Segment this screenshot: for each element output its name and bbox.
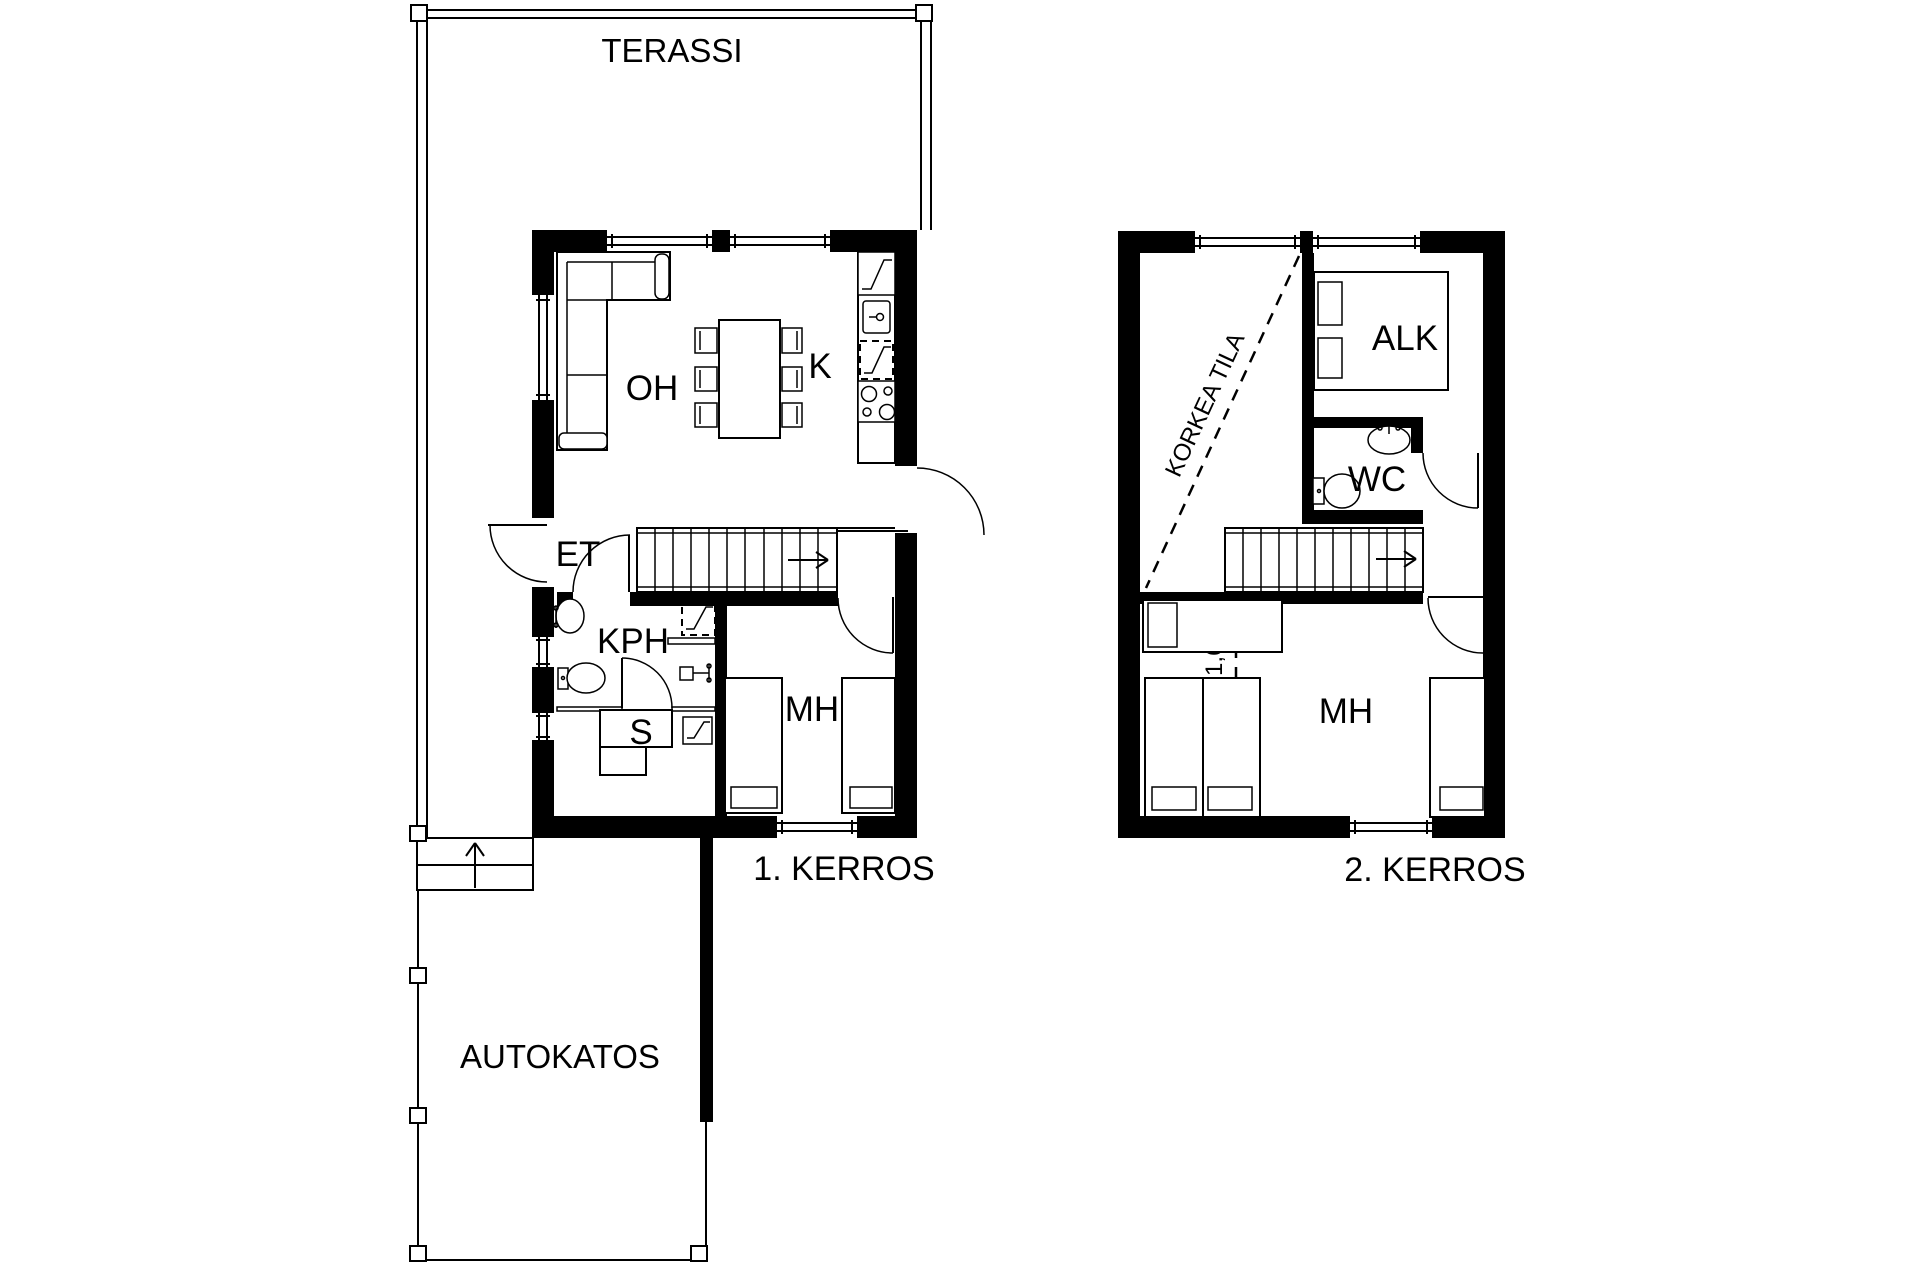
doors [1423,453,1483,653]
kitchen-label: K [808,347,831,386]
kitchen-fixtures [858,252,895,463]
bathroom-label: KPH [597,622,669,661]
bed [842,678,895,813]
post-marker [410,1246,426,1261]
second-floor-title: 2. KERROS [1344,851,1525,889]
bed [725,678,782,813]
pillow [1318,282,1342,325]
staircase [637,528,895,592]
carport-wall [700,838,713,1122]
carport-label: AUTOKATOS [460,1038,660,1075]
entrance-steps [417,838,533,890]
sauna-label: S [629,713,652,752]
post-marker [410,826,426,841]
washing-machine-icon [682,602,715,635]
floor-plan-canvas: TERASSI AUTOKATOS [0,0,1920,1280]
pillow [1440,787,1483,810]
pillow [850,787,892,808]
pillow [1318,338,1342,378]
window [1350,820,1432,834]
sauna-door-swing [622,658,672,708]
dining-table [719,320,780,438]
staircase [1225,528,1423,592]
sauna-heater-icon [683,717,712,744]
window [777,820,857,834]
fridge-icon [858,252,895,295]
sauna-fixtures [600,710,712,775]
window [536,295,550,400]
stove-icon [858,381,895,422]
window [1195,235,1300,249]
sauna-partition-wall [672,707,715,711]
dining-set [695,320,802,438]
chair [782,328,802,353]
post-marker [410,1108,426,1123]
bed [1145,678,1203,817]
hall-label: ET [556,535,601,574]
window [607,234,712,248]
wc-door-swing [1423,453,1478,508]
toilet [558,663,605,693]
bed [1430,678,1485,817]
bedroom2-label: MH [1319,692,1373,731]
bedroom1-label: MH [785,690,839,729]
floor-plan-drawing: TERASSI AUTOKATOS [0,0,1920,1280]
window [536,637,550,667]
entrance-door-swing [488,525,547,582]
chair [1148,603,1177,647]
sofa [557,252,670,450]
bedroom-door-swing [838,597,893,653]
second-floor: KORKEA TILA KORKEUS 1,6 m [1118,231,1526,889]
terrace-label: TERASSI [601,32,742,69]
chair [782,367,802,391]
post-marker [916,5,932,21]
shower-icon [680,664,711,682]
wc-label: WC [1348,460,1406,499]
bedroom2-door-swing [1428,597,1483,653]
chair [695,328,717,353]
pillow [1208,787,1252,810]
window [1313,235,1420,249]
post-marker [410,968,426,983]
alcove-label: ALK [1372,319,1438,358]
pillow [731,787,777,808]
pillow [1152,787,1196,810]
living-room-label: OH [626,369,679,408]
first-floor: OH K ET KPH S MH 1. KERROS [488,230,984,888]
wc-sink [1368,426,1410,454]
window [730,234,830,248]
bed [1203,678,1260,817]
first-floor-title: 1. KERROS [753,850,934,888]
carport: AUTOKATOS [417,838,713,1260]
open-space-label: KORKEA TILA [1160,329,1250,481]
kitchen-exterior-door-swing [838,468,984,535]
kitchen-sink [863,301,890,333]
chair [695,367,717,391]
chair [782,403,802,427]
post-marker [411,5,427,21]
post-marker [691,1246,707,1261]
bathroom-shelf [668,638,715,644]
chair [695,403,717,427]
window [536,713,550,740]
bedroom2-furniture [1143,600,1485,817]
